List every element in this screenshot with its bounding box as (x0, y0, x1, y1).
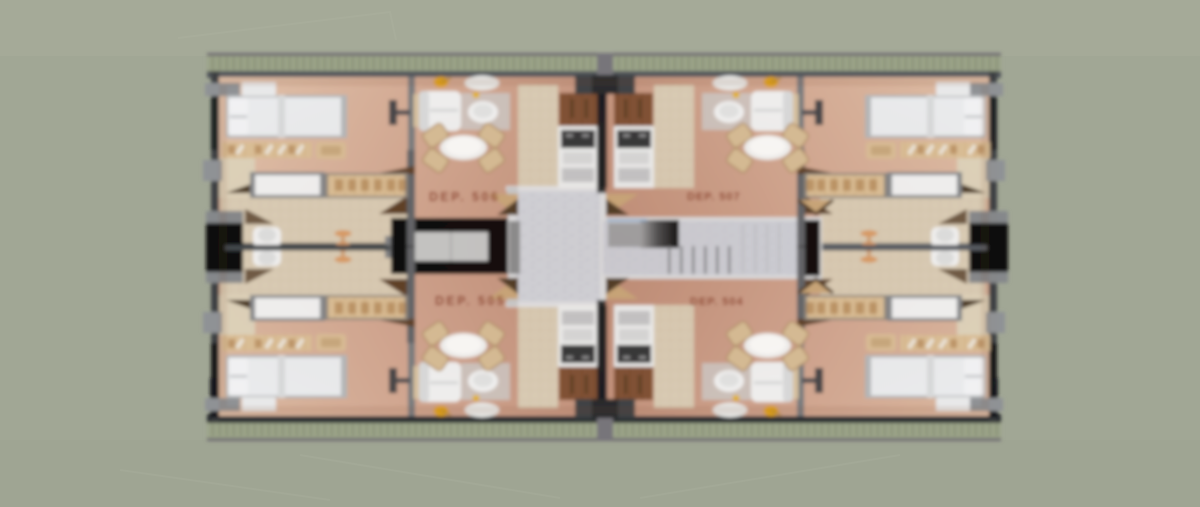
svg-text:DEP. 505: DEP. 505 (435, 294, 506, 308)
svg-text:DEP. 504: DEP. 504 (690, 296, 744, 308)
svg-text:DEP. 506: DEP. 506 (429, 190, 500, 204)
svg-text:DEP. 507: DEP. 507 (687, 191, 741, 203)
